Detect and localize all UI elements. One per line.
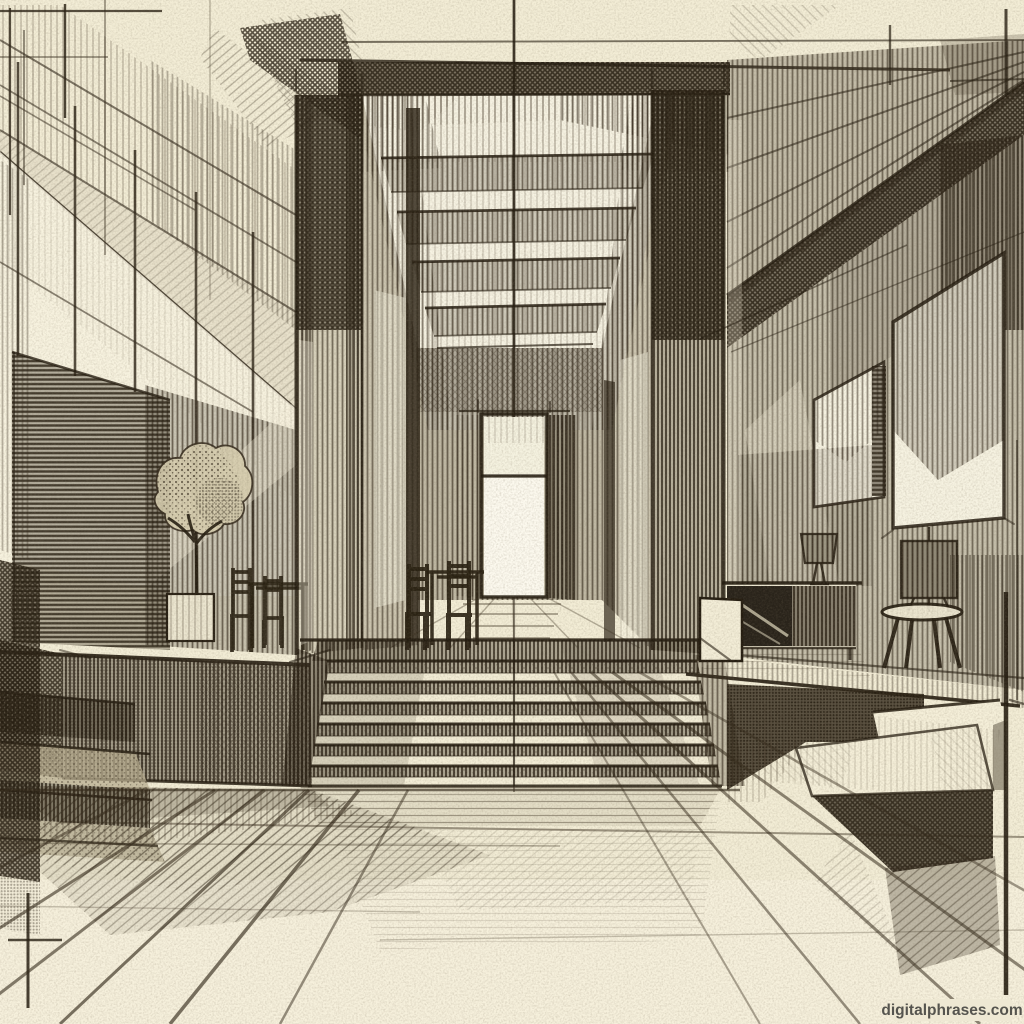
svg-text:digitalphrases.com: digitalphrases.com (881, 1002, 1022, 1019)
